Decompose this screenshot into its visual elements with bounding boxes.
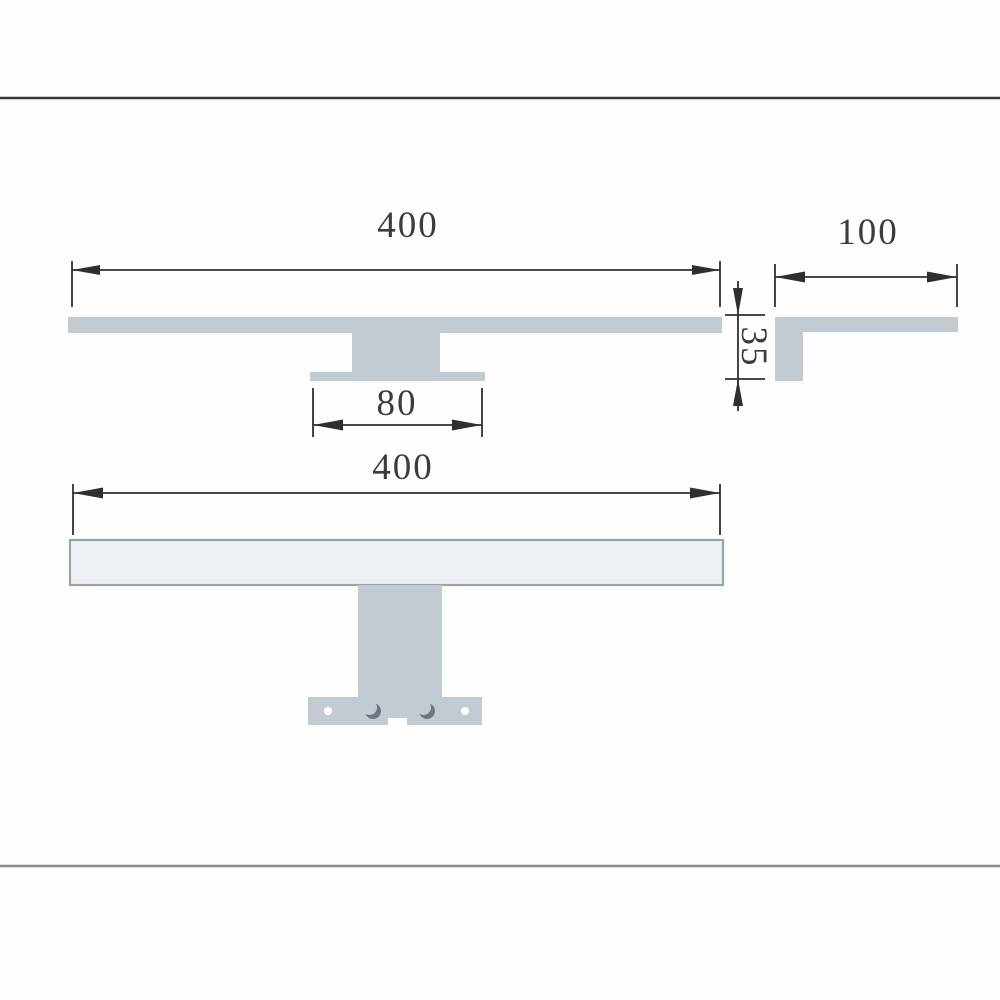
arrow-down-icon — [733, 288, 743, 315]
dim-label-profile-mount-width: 80 — [377, 383, 418, 424]
front-view: 400 — [70, 447, 723, 726]
dim-profile-mount-width: 80 — [313, 383, 482, 437]
screw-hole-icon — [461, 707, 469, 715]
lamp-profile-silhouette — [68, 317, 722, 381]
dim-label-side-depth: 100 — [837, 212, 899, 253]
arrow-right-icon — [692, 265, 720, 275]
dim-front-width: 400 — [73, 447, 720, 535]
arrow-left-icon — [72, 265, 100, 275]
mounting-bracket — [308, 585, 482, 725]
dim-profile-height: 35 — [725, 281, 774, 411]
arrow-up-icon — [733, 379, 743, 406]
arrow-right-icon — [927, 272, 957, 283]
screw-hole-icon — [324, 707, 332, 715]
arrow-left-icon — [73, 488, 103, 499]
dim-label-profile-height: 35 — [733, 327, 774, 368]
profile-view: 400 80 — [68, 205, 774, 437]
side-view: 100 — [775, 212, 958, 381]
mirror-lamp-dimension-drawing: 400 80 — [0, 0, 1000, 1000]
dim-side-depth: 100 — [775, 212, 957, 307]
dim-label-front-width: 400 — [372, 447, 434, 488]
bracket-notch — [388, 718, 407, 726]
lamp-tube — [70, 540, 723, 585]
arrow-right-icon — [690, 488, 720, 499]
dim-label-profile-width: 400 — [377, 205, 439, 246]
lamp-side-silhouette — [775, 317, 958, 381]
technical-drawing-canvas: 400 80 — [0, 0, 1000, 1000]
arrow-left-icon — [775, 272, 805, 283]
arrow-right-icon — [452, 420, 482, 431]
arrow-left-icon — [313, 420, 343, 431]
dim-profile-width: 400 — [72, 205, 720, 307]
